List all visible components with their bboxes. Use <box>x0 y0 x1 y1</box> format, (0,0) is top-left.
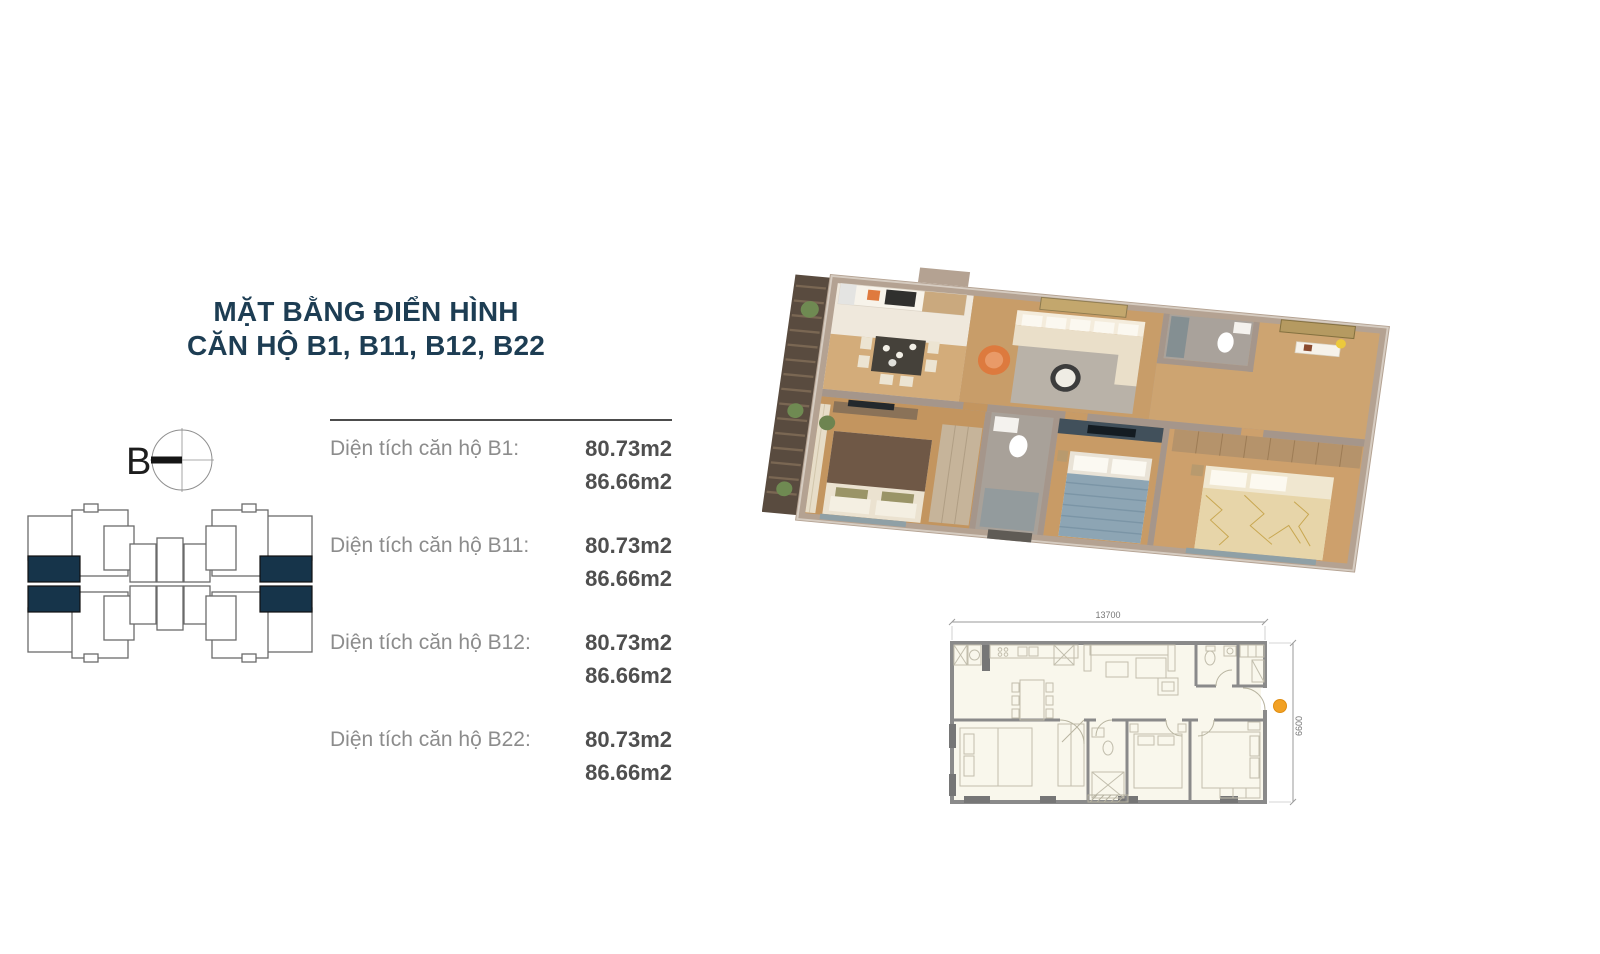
area-row-b22: Diện tích căn hộ B22: 80.73m2 86.66m2 <box>330 723 672 789</box>
page-title: MẶT BẰNG ĐIỂN HÌNH CĂN HỘ B1, B11, B12, … <box>160 295 572 363</box>
unit-b12-highlight <box>260 556 312 582</box>
area-values: 80.73m2 86.66m2 <box>585 626 672 692</box>
area-row-b1: Diện tích căn hộ B1: 80.73m2 86.66m2 <box>330 432 672 498</box>
fridge-icon <box>838 283 857 305</box>
entry-bathroom <box>1164 314 1254 366</box>
nightstand-icon <box>1190 464 1204 476</box>
building-keyplan <box>18 502 322 664</box>
plan-outline <box>952 643 1265 802</box>
keyplan-units <box>28 504 312 662</box>
area-label: Diện tích căn hộ B22: <box>330 723 531 789</box>
sink-icon <box>1233 322 1252 335</box>
page: MẶT BẰNG ĐIỂN HÌNH CĂN HỘ B1, B11, B12, … <box>0 0 1600 954</box>
area-label: Diện tích căn hộ B12: <box>330 626 531 692</box>
width-dimension-label: 13700 <box>1095 610 1120 620</box>
area-main-value: 80.73m2 <box>585 723 672 756</box>
apartment-3d-render <box>762 242 1434 587</box>
area-gross-value: 86.66m2 <box>585 756 672 789</box>
area-values: 80.73m2 86.66m2 <box>585 723 672 789</box>
unit-b1-highlight <box>28 556 80 582</box>
apartment-2d-plan: 13700 6600 <box>920 596 1310 816</box>
area-main-value: 80.73m2 <box>585 626 672 659</box>
sink-icon <box>993 416 1019 433</box>
stove-sink-icon <box>884 290 916 308</box>
area-label: Diện tích căn hộ B11: <box>330 529 529 595</box>
section-marker-label: B <box>126 441 151 483</box>
area-gross-value: 86.66m2 <box>585 562 672 595</box>
area-row-b12: Diện tích căn hộ B12: 80.73m2 86.66m2 <box>330 626 672 692</box>
title-line-2: CĂN HỘ B1, B11, B12, B22 <box>160 329 572 363</box>
area-table: Diện tích căn hộ B1: 80.73m2 86.66m2 Diệ… <box>330 419 672 820</box>
area-values: 80.73m2 86.66m2 <box>585 529 672 595</box>
area-gross-value: 86.66m2 <box>585 465 672 498</box>
title-line-1: MẶT BẰNG ĐIỂN HÌNH <box>160 295 572 329</box>
area-main-value: 80.73m2 <box>585 529 672 562</box>
area-label: Diện tích căn hộ B1: <box>330 432 519 498</box>
section-marker: B <box>118 416 228 500</box>
shower-icon <box>980 488 1039 532</box>
area-row-b11: Diện tích căn hộ B11: 80.73m2 86.66m2 <box>330 529 672 595</box>
entry-marker-dot <box>1274 700 1287 713</box>
height-dimension-label: 6600 <box>1294 716 1304 736</box>
area-values: 80.73m2 86.66m2 <box>585 432 672 498</box>
unit-b22-highlight <box>260 586 312 612</box>
area-main-value: 80.73m2 <box>585 432 672 465</box>
table-top-rule <box>330 419 672 421</box>
nightstand-icon <box>1057 450 1069 462</box>
area-gross-value: 86.66m2 <box>585 659 672 692</box>
unit-b11-highlight <box>28 586 80 612</box>
